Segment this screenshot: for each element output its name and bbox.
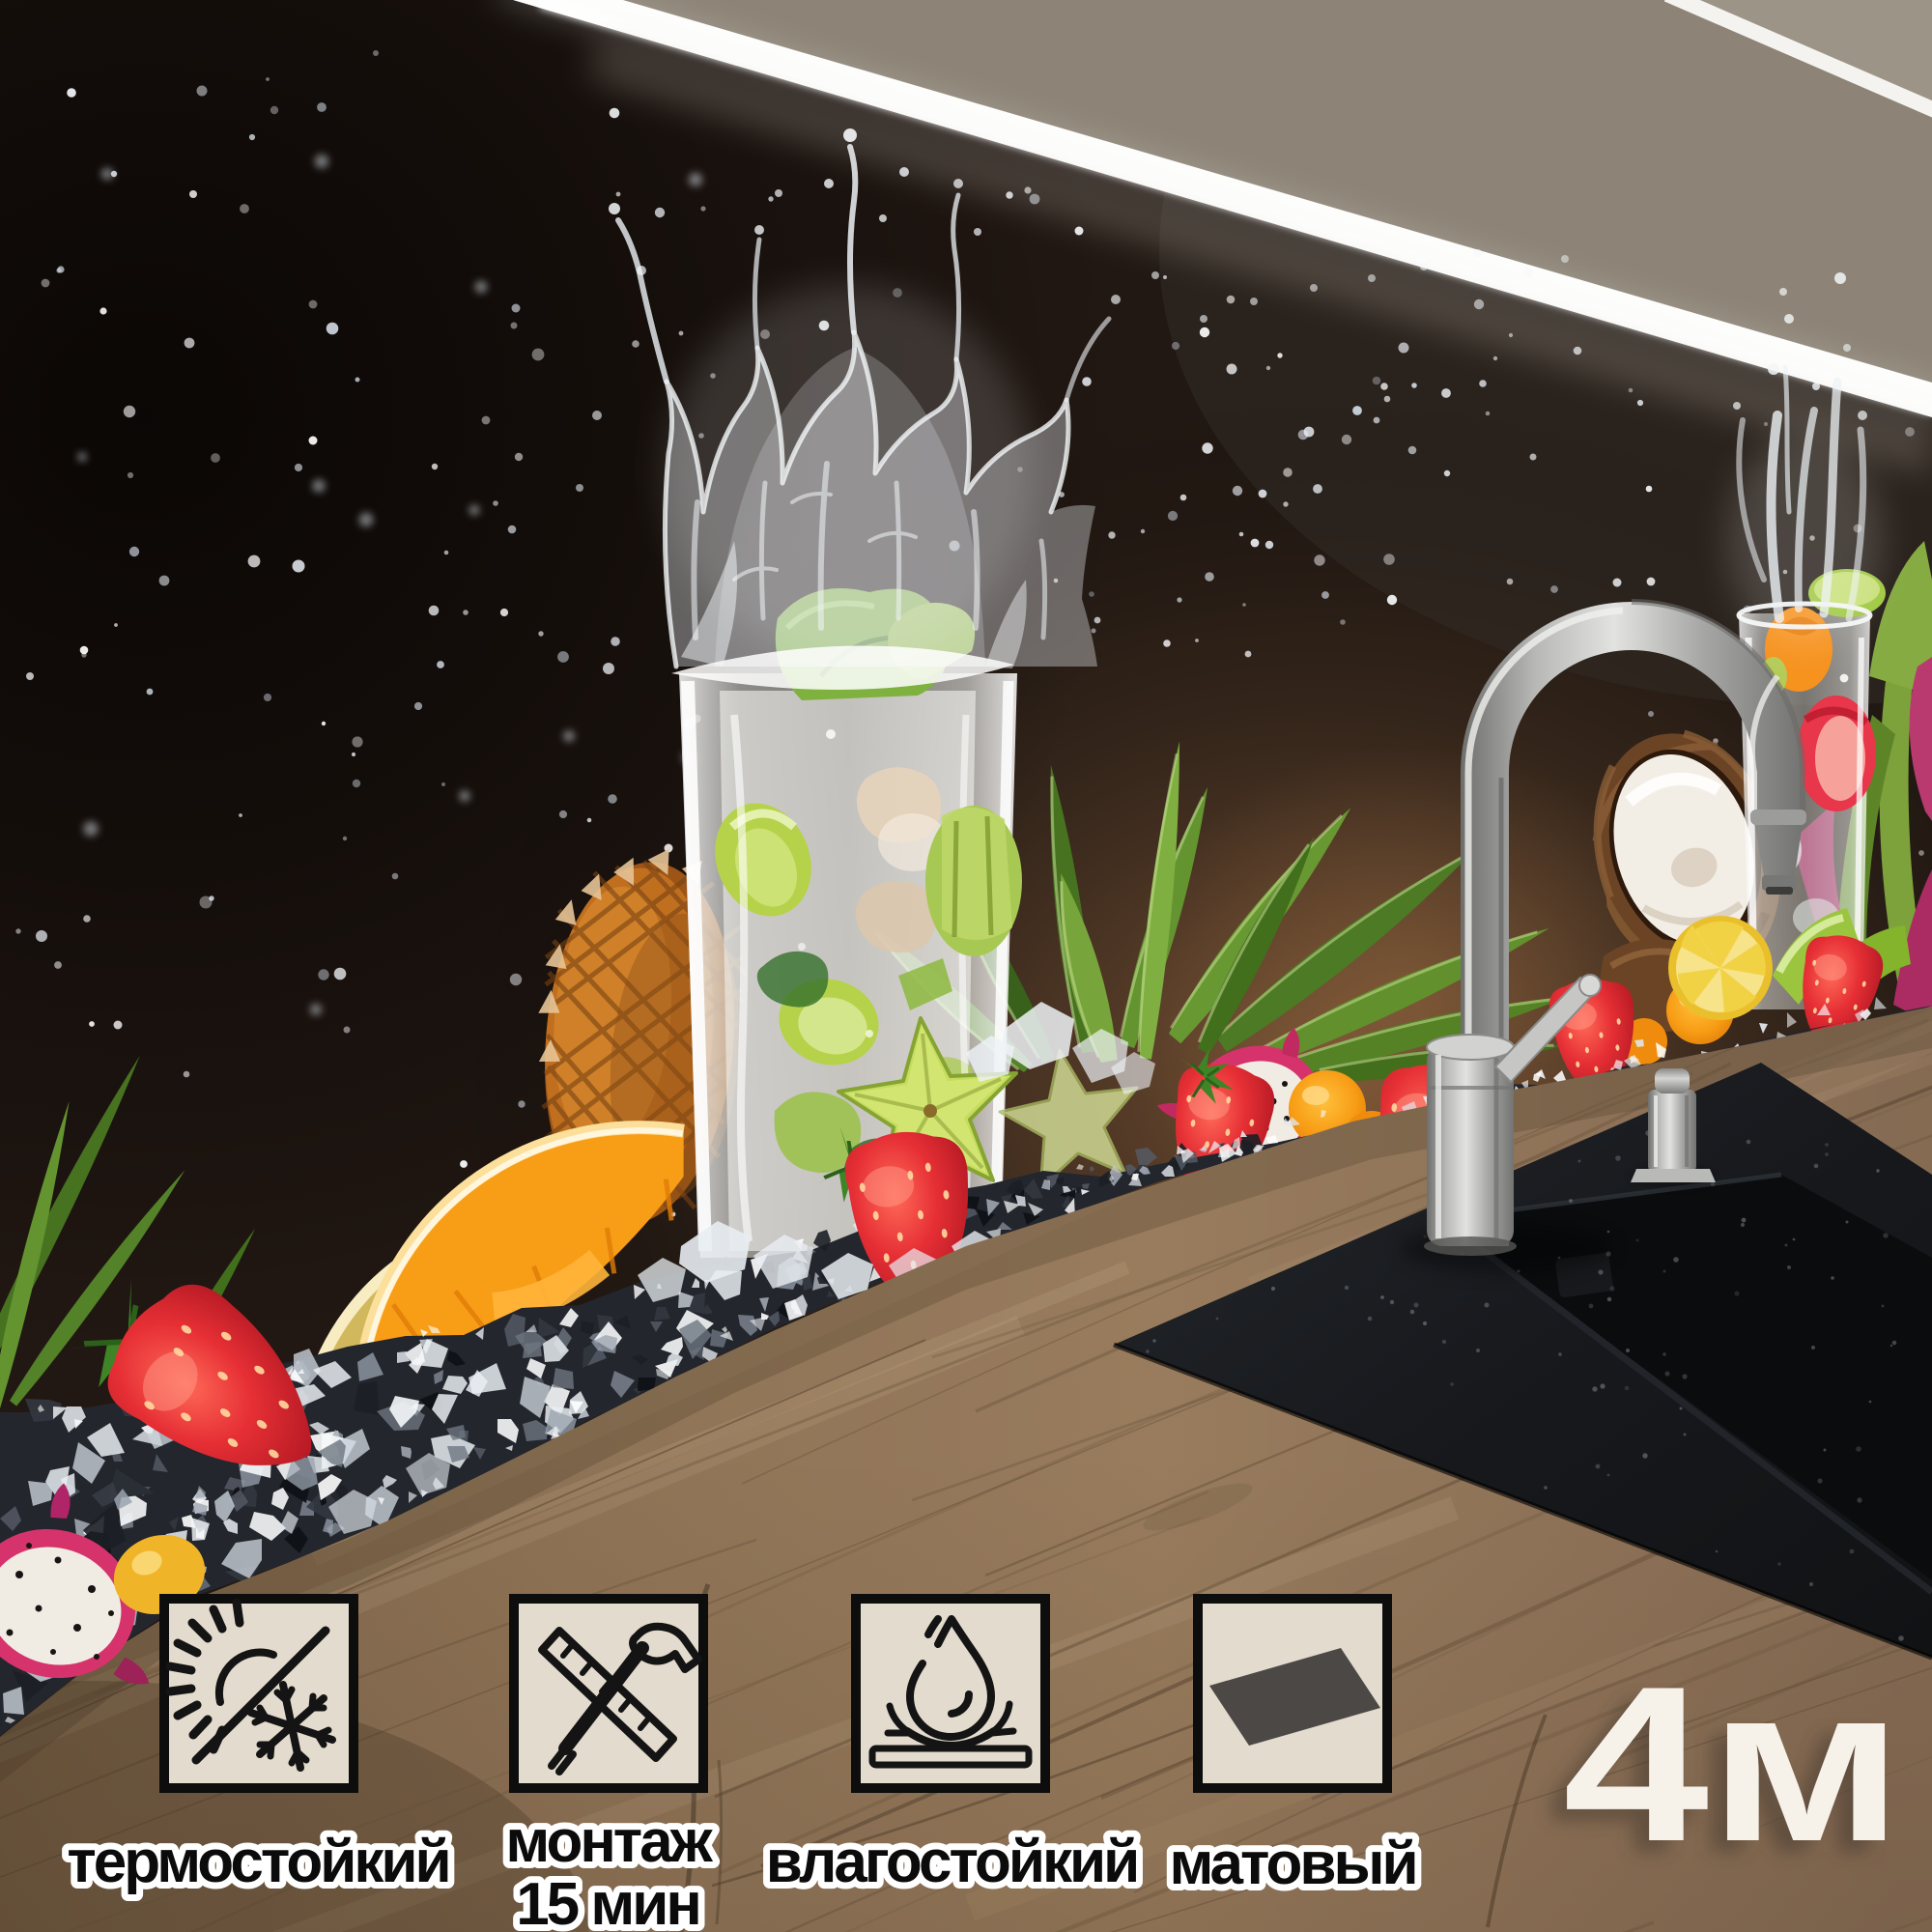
- svg-text:4м: 4м: [1563, 1640, 1903, 1888]
- svg-text:монтаж: монтаж: [505, 1808, 713, 1875]
- svg-text:термостойкий: термостойкий: [67, 1829, 448, 1895]
- svg-text:15 мин: 15 мин: [516, 1871, 699, 1932]
- svg-text:матовый: матовый: [1169, 1831, 1415, 1897]
- svg-text:влагостойкий: влагостойкий: [766, 1829, 1138, 1895]
